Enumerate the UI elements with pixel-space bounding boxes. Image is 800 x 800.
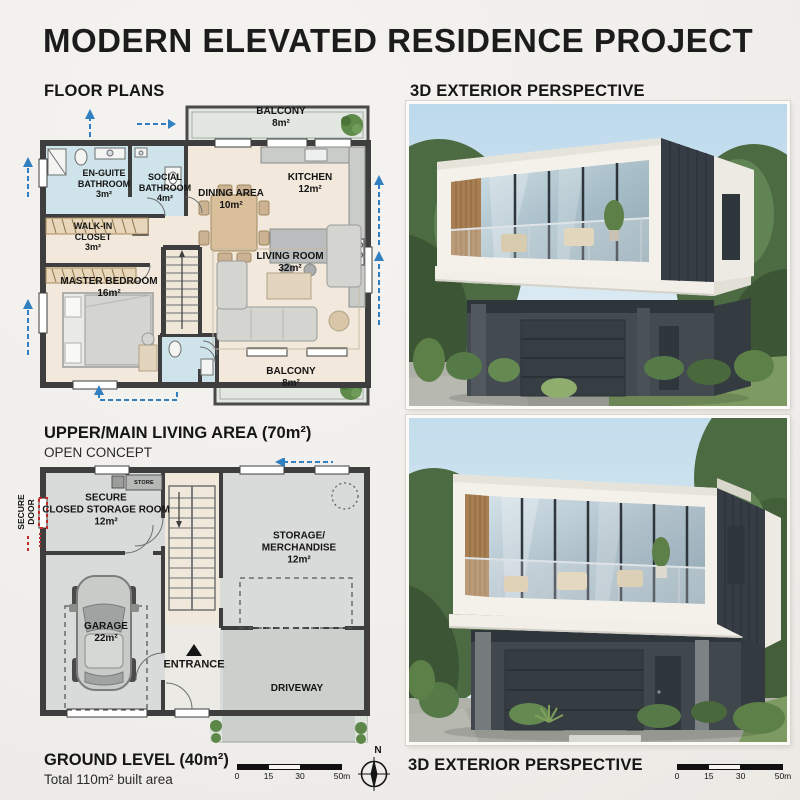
room-label-master-bedroom: MASTER BEDROOM16m² bbox=[60, 276, 157, 300]
room-label-living-room: LIVING ROOM32m² bbox=[256, 251, 323, 275]
ground-plan-caption: GROUND LEVEL (40m²) bbox=[44, 751, 229, 770]
room-label-dining-area: DINING AREA10m² bbox=[198, 188, 264, 212]
exterior-render-top bbox=[406, 101, 790, 409]
bed-icon bbox=[63, 293, 157, 371]
upper-level bbox=[437, 138, 754, 282]
scale-bar: 0 15 30 50m bbox=[237, 764, 342, 782]
pillar bbox=[475, 632, 491, 730]
room-label-secure-storage: SECURE CLOSED STORAGE ROOM12m² bbox=[42, 492, 170, 527]
section-header-exterior-top: 3D EXTERIOR PERSPECTIVE bbox=[410, 82, 645, 101]
rear-white-wing bbox=[765, 510, 781, 648]
secure-door-dash bbox=[39, 533, 41, 549]
side-window bbox=[727, 526, 745, 584]
ground-stairs bbox=[169, 486, 215, 610]
room-label-storage-merchandise: STORAGE/ MERCHANDISE12m² bbox=[262, 530, 336, 565]
scale-bar: 0 15 30 50m bbox=[677, 764, 783, 782]
upper-plan-caption: UPPER/MAIN LIVING AREA (70m²) bbox=[44, 424, 311, 443]
compass-north-label: N bbox=[374, 745, 381, 756]
room-label-balcony-top: BALCONY8m² bbox=[256, 106, 305, 130]
pillar bbox=[637, 308, 650, 396]
driveway-inner bbox=[223, 628, 364, 710]
room-label-ensuite-bathroom: EN-GUITE BATHROOM3m² bbox=[78, 168, 130, 200]
upper-floor-plan-drawing bbox=[15, 97, 400, 422]
room-label-driveway: DRIVEWAY bbox=[271, 683, 323, 695]
side-window bbox=[722, 194, 740, 260]
compass-icon: N bbox=[352, 742, 396, 794]
room-label-balcony-bottom: BALCONY8m² bbox=[266, 366, 315, 390]
stairs bbox=[165, 249, 199, 335]
exterior-render-bottom bbox=[406, 415, 790, 745]
section-header-exterior-bottom: 3D EXTERIOR PERSPECTIVE bbox=[408, 756, 643, 775]
room-label-kitchen: KITCHEN12m² bbox=[288, 172, 332, 196]
room-label-social-bathroom: SOCIAL BATHROOM4m² bbox=[139, 172, 191, 204]
secure-door-label: SECURE DOOR bbox=[16, 494, 36, 529]
pillar bbox=[471, 304, 486, 396]
store-box-label: STORE bbox=[134, 480, 154, 486]
room-label-walk-in-closet: WALK-IN CLOSET3m² bbox=[74, 221, 113, 253]
presentation-board: MODERN ELEVATED RESIDENCE PROJECT FLOOR … bbox=[0, 0, 800, 800]
entrance-arrow-icon bbox=[186, 644, 202, 656]
page-title: MODERN ELEVATED RESIDENCE PROJECT bbox=[43, 22, 753, 60]
tree-icon bbox=[341, 114, 363, 136]
ground-plan-subcaption: Total 110m² built area bbox=[44, 772, 173, 787]
room-label-garage: GARAGE22m² bbox=[84, 621, 128, 645]
room-label-entrance: ENTRANCE bbox=[163, 659, 224, 672]
